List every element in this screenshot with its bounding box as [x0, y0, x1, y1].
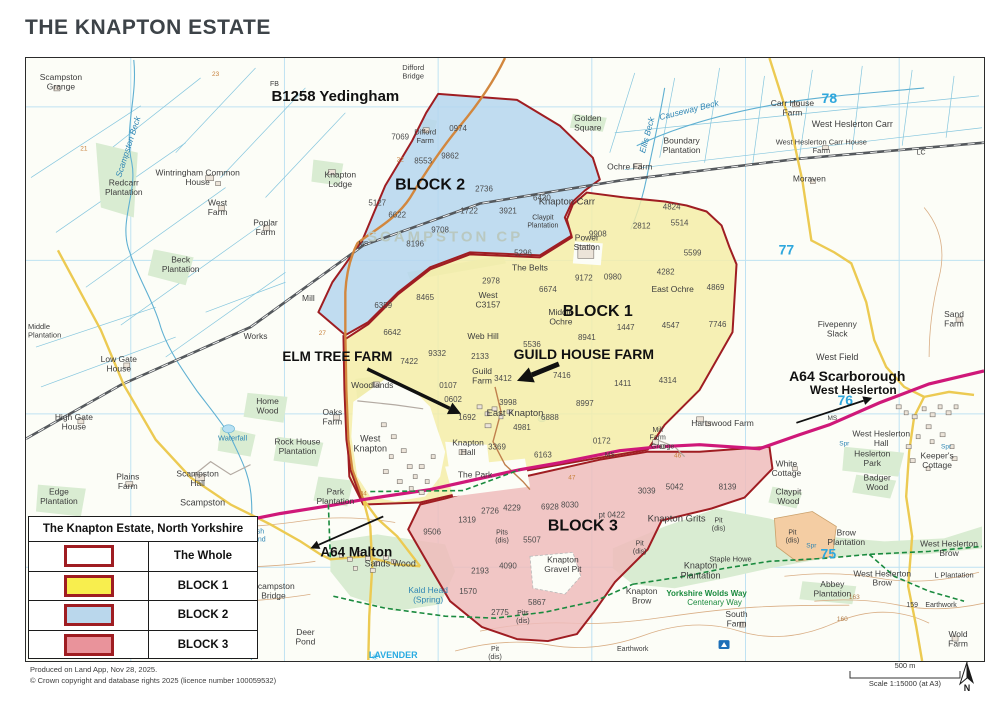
place-label: MS: [358, 240, 368, 247]
map-annotation: BLOCK 1: [563, 303, 633, 320]
place-label: BoundaryPlantation: [663, 136, 701, 155]
road-number: 21: [80, 146, 88, 153]
place-label: Spr: [941, 444, 952, 451]
legend-label: BLOCK 2: [149, 601, 257, 630]
map-annotation: A64 Scarborough: [789, 368, 905, 384]
field-number: 1319: [458, 515, 476, 524]
field-number: 4981: [513, 423, 531, 432]
field-number: 5042: [666, 483, 684, 492]
place-label: West Field: [816, 352, 858, 362]
field-number: 6674: [539, 285, 557, 294]
place-label: BadgerWood: [864, 473, 892, 492]
field-number: 9908: [589, 229, 607, 238]
field-number: 7422: [400, 357, 418, 366]
place-label: WoldFarm: [948, 629, 968, 648]
page: THE KNAPTON ESTATE: [0, 0, 1000, 706]
place-label: ClaypitWood: [775, 487, 802, 506]
whole-swatch: [64, 545, 114, 567]
field-number: 6622: [388, 210, 406, 219]
field-number: 9862: [441, 152, 459, 161]
place-label: Mill: [302, 293, 315, 303]
place-label: Grange: [651, 444, 674, 451]
field-number: 4229: [503, 504, 521, 513]
field-number: 7069: [391, 133, 409, 142]
place-label: West Heslerton Carr: [812, 119, 893, 129]
field-number: 4090: [499, 561, 517, 570]
place-label: WestC3157: [476, 290, 501, 309]
place-label: SandFarm: [944, 309, 964, 328]
field-number: 2812: [633, 221, 651, 230]
place-label: Keeper'sCottage: [921, 451, 954, 470]
place-label: East Knapton: [487, 408, 544, 419]
page-title: THE KNAPTON ESTATE: [25, 16, 271, 40]
legend-row-block3: BLOCK 3: [29, 631, 257, 660]
field-number: 1570: [459, 587, 477, 596]
field-number: 8139: [719, 483, 737, 492]
field-number: 2736: [475, 185, 493, 194]
field-number: 6359: [374, 301, 392, 310]
road-number: 160: [837, 616, 848, 623]
place-label: East Ochre: [651, 284, 694, 294]
place-label: LC: [917, 150, 926, 157]
field-number: 0974: [449, 124, 467, 133]
field-number: 7416: [553, 371, 571, 380]
place-label: GoldenSquare: [574, 113, 602, 132]
legend-label: The Whole: [149, 542, 257, 571]
credits: Produced on Land App, Nov 28, 2025. © Cr…: [30, 664, 276, 686]
road-number: 46: [674, 453, 682, 460]
place-label: Pits(dis): [516, 610, 530, 625]
place-label: DiffordFarm: [414, 128, 436, 145]
place-label: Knapton Grits: [648, 513, 706, 524]
place-label: Moraven: [793, 174, 826, 184]
field-number: 9172: [575, 273, 593, 282]
place-label: Staple Howe: [709, 554, 751, 563]
legend-row-block2: BLOCK 2: [29, 601, 257, 631]
place-label: Scampston: [180, 498, 225, 508]
field-number: 7746: [709, 320, 727, 329]
field-number: 0602: [444, 395, 462, 404]
field-number: 4824: [663, 203, 681, 212]
scale-bar-graphic: [847, 670, 963, 679]
road-number: 27: [319, 330, 327, 337]
map-frame: ✳ SCAMPSTON CP ScampstonGrangeFBDiffordB…: [25, 57, 985, 662]
scale-distance: 500 m: [845, 661, 965, 670]
field-number: 2775: [491, 608, 509, 617]
place-label: OaksFarm: [322, 407, 342, 426]
field-number: 9332: [428, 349, 446, 358]
field-number: 2726: [481, 506, 499, 515]
field-number: 1411: [614, 379, 632, 388]
field-number: 6163: [534, 451, 552, 460]
scale-bar: 500 m Scale 1:15000 (at A3): [845, 661, 965, 688]
field-number: 4547: [662, 321, 680, 330]
place-label: Web Hill: [467, 331, 499, 341]
place-label: LAVENDER: [369, 650, 418, 660]
road-number: 23: [212, 71, 220, 78]
grid-number: 75: [821, 545, 837, 561]
field-number: 0107: [439, 381, 457, 390]
place-label: Ochre Farm: [607, 162, 652, 172]
field-number: 4282: [657, 267, 675, 276]
field-number: 4314: [659, 376, 677, 385]
field-number: 8196: [406, 239, 424, 248]
place-label: MS: [827, 415, 837, 422]
place-label: MS: [605, 452, 615, 459]
map-annotation: A64 Malton: [320, 544, 392, 559]
field-number: 5514: [671, 218, 689, 227]
place-label: The Belts: [512, 262, 548, 272]
place-label: FB: [270, 81, 279, 88]
field-number: 5599: [684, 248, 702, 257]
legend: The Knapton Estate, North Yorkshire The …: [28, 516, 258, 659]
legend-title: The Knapton Estate, North Yorkshire: [29, 517, 257, 542]
field-number: 9506: [423, 527, 441, 536]
place-label: L Plantation: [934, 570, 973, 579]
place-label: WhiteCottage: [772, 459, 802, 478]
field-number: 0980: [604, 272, 622, 281]
field-number: 3412: [494, 374, 512, 383]
north-label: N: [964, 683, 971, 692]
place-label: Waterfall: [218, 434, 248, 443]
credits-line1: Produced on Land App, Nov 28, 2025.: [30, 664, 276, 675]
road-number: 22: [397, 157, 405, 164]
place-label: WestFarm: [208, 198, 228, 217]
place-label: Kald Head(Spring): [408, 585, 448, 604]
place-label: GuildFarm: [472, 366, 492, 385]
field-number: 8997: [576, 399, 594, 408]
field-number: 8941: [578, 333, 596, 342]
place-label: PoplarFarm: [253, 217, 278, 236]
place-label: Earthwork: [617, 646, 649, 653]
place-label: HomeWood: [256, 396, 279, 415]
field-number: 1692: [458, 413, 476, 422]
place-label: DeerPond: [296, 627, 316, 646]
place-label: Spr: [839, 441, 850, 448]
legend-label: BLOCK 3: [149, 631, 257, 660]
place-label: Centenary Way: [687, 598, 742, 607]
place-label: Pits(dis): [495, 529, 509, 544]
place-label: Earthwork: [925, 602, 957, 609]
field-number: 6430: [533, 194, 551, 203]
north-indicator: N: [950, 660, 984, 697]
place-label: KnaptonLodge: [325, 170, 357, 189]
scale-ratio: Scale 1:15000 (at A3): [845, 679, 965, 688]
place-label: Yorkshire Wolds Way: [666, 589, 747, 598]
place-label: 159: [906, 602, 918, 609]
field-number: 8030: [561, 501, 579, 510]
field-number: 6928: [541, 503, 559, 512]
road-number: 163: [849, 594, 860, 601]
map-annotation: BLOCK 3: [548, 517, 618, 534]
place-label: Spr: [806, 542, 817, 549]
place-label: DiffordBridge: [402, 63, 424, 80]
place-label: Works: [244, 331, 268, 341]
field-number: 3369: [488, 443, 506, 452]
place-label: Sands Wood: [365, 558, 416, 568]
map-annotation: ELM TREE FARM: [282, 349, 392, 364]
grid-number: 77: [779, 241, 795, 257]
place-label: Rock HousePlantation: [274, 437, 320, 456]
field-number: 3039: [638, 487, 656, 496]
block2-swatch: [64, 604, 114, 626]
field-number: 5127: [368, 199, 386, 208]
place-label: Woodlands: [351, 380, 393, 390]
field-number: 5507: [523, 535, 541, 544]
place-label: PlainsFarm: [116, 472, 139, 491]
field-number: 2193: [471, 566, 489, 575]
map-annotation: B1258 Yedingham: [272, 88, 400, 105]
legend-row-whole: The Whole: [29, 542, 257, 572]
legend-row-block1: BLOCK 1: [29, 572, 257, 602]
block1-swatch: [64, 575, 114, 597]
field-number: 2978: [482, 276, 500, 285]
place-label: Hartswood Farm: [691, 418, 754, 428]
north-arrow-icon: N: [952, 660, 982, 692]
field-number: 8465: [416, 293, 434, 302]
field-number: 5867: [528, 598, 546, 607]
field-number: 1447: [617, 323, 635, 332]
field-number: 4869: [707, 283, 725, 292]
field-number: 6642: [383, 328, 401, 337]
field-number: 2133: [471, 352, 489, 361]
road-number: 34: [360, 491, 368, 498]
grid-number: 78: [822, 90, 838, 106]
road-number: 47: [568, 475, 576, 482]
block3-swatch: [64, 634, 114, 656]
field-number: 6888: [541, 413, 559, 422]
map-annotation: GUILD HOUSE FARM: [514, 346, 654, 362]
field-number: 5296: [514, 248, 532, 257]
credits-line2: © Crown copyright and database rights 20…: [30, 675, 276, 686]
campsite-icon: [719, 640, 730, 649]
map-annotation: BLOCK 2: [395, 177, 465, 194]
legend-label: BLOCK 1: [149, 572, 257, 601]
place-label: RedcarrPlantation: [105, 178, 143, 197]
place-label: KnaptonGravel Pit: [544, 554, 582, 573]
field-number: 8553: [414, 157, 432, 166]
field-number: 0172: [593, 437, 611, 446]
field-number: 3998: [499, 398, 517, 407]
field-number: 9708: [431, 225, 449, 234]
place-label: The Park: [458, 470, 493, 480]
field-number: 3921: [499, 206, 517, 215]
place-label: SouthFarm: [725, 609, 747, 628]
map-annotation: West Heslerton: [810, 383, 897, 397]
field-number: 1722: [460, 206, 478, 215]
